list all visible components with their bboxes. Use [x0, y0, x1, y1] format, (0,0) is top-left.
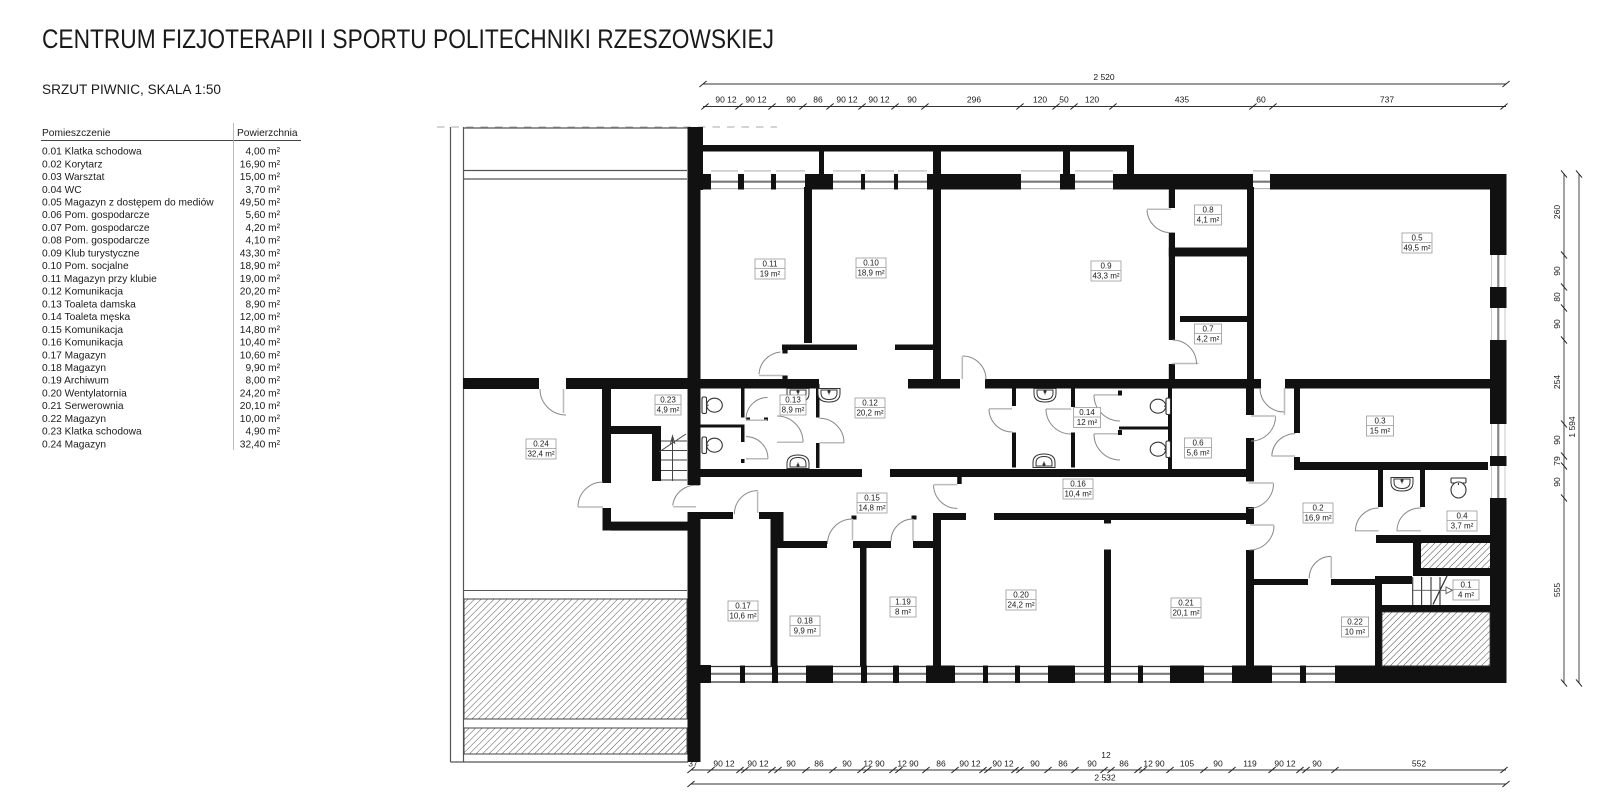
svg-text:0.2: 0.2 [1312, 504, 1324, 513]
svg-text:90: 90 [1552, 266, 1562, 276]
svg-text:12: 12 [1101, 750, 1111, 760]
svg-text:260: 260 [1552, 205, 1562, 219]
svg-text:9,90 m²: 9,90 m² [245, 363, 280, 374]
svg-text:435: 435 [1175, 95, 1189, 105]
svg-text:37: 37 [688, 759, 698, 769]
svg-text:90 12: 90 12 [868, 95, 890, 105]
svg-text:254: 254 [1552, 375, 1562, 389]
svg-text:0.12 Komunikacja: 0.12 Komunikacja [42, 287, 123, 298]
svg-text:2 532: 2 532 [1094, 773, 1116, 783]
svg-text:0.14: 0.14 [1079, 408, 1095, 417]
svg-text:32,40 m²: 32,40 m² [240, 439, 281, 450]
svg-text:15 m²: 15 m² [1370, 427, 1391, 436]
svg-text:90: 90 [842, 759, 852, 769]
svg-text:Powierzchnia: Powierzchnia [237, 128, 298, 139]
svg-text:90 12: 90 12 [747, 759, 769, 769]
svg-text:0.24 Magazyn: 0.24 Magazyn [42, 439, 106, 450]
svg-text:0.03 Warsztat: 0.03 Warsztat [42, 172, 105, 183]
svg-text:90 12: 90 12 [745, 95, 767, 105]
svg-text:0.19 Archiwum: 0.19 Archiwum [42, 376, 109, 387]
svg-text:0.4: 0.4 [1456, 512, 1468, 521]
svg-text:0.17 Magazyn: 0.17 Magazyn [42, 350, 106, 361]
svg-text:0.13 Toaleta damska: 0.13 Toaleta damska [42, 299, 136, 310]
svg-text:0.10: 0.10 [863, 259, 879, 268]
svg-text:10,60 m²: 10,60 m² [240, 350, 281, 361]
svg-text:90: 90 [1087, 759, 1097, 769]
svg-text:4,9 m²: 4,9 m² [657, 406, 680, 415]
svg-text:0.20: 0.20 [1013, 591, 1029, 600]
svg-text:0.3: 0.3 [1374, 417, 1386, 426]
svg-text:Pomieszczenie: Pomieszczenie [42, 128, 111, 139]
svg-text:4,10 m²: 4,10 m² [245, 236, 280, 247]
svg-text:4 m²: 4 m² [1458, 591, 1474, 600]
svg-text:60: 60 [1256, 95, 1266, 105]
svg-text:19 m²: 19 m² [760, 270, 781, 279]
svg-text:24,2 m²: 24,2 m² [1007, 601, 1034, 610]
svg-text:8,9 m²: 8,9 m² [782, 406, 805, 415]
svg-text:10,00 m²: 10,00 m² [240, 414, 281, 425]
svg-text:1 594: 1 594 [1567, 416, 1577, 438]
svg-text:3,70 m²: 3,70 m² [245, 185, 280, 196]
svg-text:90 12: 90 12 [1274, 759, 1296, 769]
svg-text:90 12: 90 12 [713, 759, 735, 769]
svg-text:0.22 Magazyn: 0.22 Magazyn [42, 414, 106, 425]
svg-text:90 12: 90 12 [715, 95, 737, 105]
svg-text:0.07 Pom. gospodarcze: 0.07 Pom. gospodarcze [42, 223, 150, 234]
svg-text:0.10 Pom. socjalne: 0.10 Pom. socjalne [42, 261, 129, 272]
svg-text:0.15 Komunikacja: 0.15 Komunikacja [42, 325, 123, 336]
svg-text:0.22: 0.22 [1347, 618, 1363, 627]
svg-text:12 90: 12 90 [863, 759, 885, 769]
svg-text:0.17: 0.17 [735, 602, 751, 611]
svg-text:79: 79 [1552, 456, 1562, 466]
svg-text:16,9 m²: 16,9 m² [1304, 514, 1331, 523]
svg-text:49,50 m²: 49,50 m² [240, 198, 281, 209]
svg-text:19,00 m²: 19,00 m² [240, 274, 281, 285]
svg-text:4,90 m²: 4,90 m² [245, 427, 280, 438]
svg-text:0.18 Magazyn: 0.18 Magazyn [42, 363, 106, 374]
svg-text:20,20 m²: 20,20 m² [240, 287, 281, 298]
svg-text:737: 737 [1380, 95, 1394, 105]
svg-text:552: 552 [1412, 759, 1426, 769]
svg-text:5,6 m²: 5,6 m² [1187, 449, 1210, 458]
svg-text:0.18: 0.18 [797, 617, 813, 626]
svg-text:12 90: 12 90 [1143, 759, 1165, 769]
svg-text:86: 86 [1058, 759, 1068, 769]
svg-text:SRZUT PIWNIC, SKALA 1:50: SRZUT PIWNIC, SKALA 1:50 [42, 82, 221, 97]
svg-text:0.15: 0.15 [864, 494, 880, 503]
svg-text:10,6 m²: 10,6 m² [729, 612, 756, 621]
svg-text:0.11: 0.11 [763, 260, 779, 269]
svg-text:0.11 Magazyn przy klubie: 0.11 Magazyn przy klubie [42, 274, 157, 285]
svg-text:90: 90 [1552, 435, 1562, 445]
svg-text:20,2 m²: 20,2 m² [856, 409, 883, 418]
svg-text:0.21 Serwerownia: 0.21 Serwerownia [42, 401, 124, 412]
svg-text:86: 86 [813, 95, 823, 105]
svg-text:24,20 m²: 24,20 m² [240, 389, 281, 400]
svg-text:0.1: 0.1 [1460, 581, 1472, 590]
svg-text:86: 86 [814, 759, 824, 769]
svg-text:5,60 m²: 5,60 m² [245, 210, 280, 221]
svg-text:14,8 m²: 14,8 m² [858, 504, 885, 513]
svg-text:10,40 m²: 10,40 m² [240, 338, 281, 349]
svg-text:2 520: 2 520 [1093, 72, 1115, 82]
svg-text:120: 120 [1085, 95, 1099, 105]
svg-text:0.5: 0.5 [1411, 234, 1423, 243]
svg-text:90: 90 [786, 95, 796, 105]
svg-text:0.6: 0.6 [1192, 439, 1204, 448]
svg-text:0.06 Pom. gospodarcze: 0.06 Pom. gospodarcze [42, 210, 150, 221]
svg-text:0.7: 0.7 [1202, 325, 1214, 334]
svg-text:120: 120 [1033, 95, 1047, 105]
svg-text:119: 119 [1243, 759, 1257, 769]
svg-text:32,4 m²: 32,4 m² [527, 450, 554, 459]
svg-text:4,00 m²: 4,00 m² [245, 147, 280, 158]
svg-text:8 m²: 8 m² [895, 608, 911, 617]
svg-text:90 12: 90 12 [992, 759, 1014, 769]
svg-text:90: 90 [786, 759, 796, 769]
svg-text:0.13: 0.13 [785, 396, 801, 405]
svg-text:0.20 Wentylatornia: 0.20 Wentylatornia [42, 389, 127, 400]
svg-text:80: 80 [1552, 292, 1562, 302]
svg-text:18,90 m²: 18,90 m² [240, 261, 281, 272]
svg-text:0.8: 0.8 [1202, 206, 1214, 215]
svg-text:49,5 m²: 49,5 m² [1403, 244, 1430, 253]
svg-text:90 12: 90 12 [959, 759, 981, 769]
svg-text:10,4 m²: 10,4 m² [1064, 490, 1091, 499]
svg-text:15,00 m²: 15,00 m² [240, 172, 281, 183]
svg-text:0.01 Klatka schodowa: 0.01 Klatka schodowa [42, 147, 142, 158]
svg-text:12 90: 12 90 [897, 759, 919, 769]
svg-text:0.08 Pom. gospodarcze: 0.08 Pom. gospodarcze [42, 236, 150, 247]
svg-text:50: 50 [1059, 95, 1069, 105]
svg-text:0.24: 0.24 [533, 440, 549, 449]
svg-text:12 m²: 12 m² [1077, 418, 1098, 427]
svg-text:43,30 m²: 43,30 m² [240, 248, 281, 259]
svg-text:20,10 m²: 20,10 m² [240, 401, 281, 412]
svg-text:90: 90 [1312, 759, 1322, 769]
svg-text:14,80 m²: 14,80 m² [240, 325, 281, 336]
svg-text:43,3 m²: 43,3 m² [1092, 272, 1119, 281]
svg-text:8,90 m²: 8,90 m² [245, 299, 280, 310]
svg-text:90: 90 [1213, 759, 1223, 769]
svg-text:86: 86 [1119, 759, 1129, 769]
svg-text:CENTRUM FIZJOTERAPII I SPORTU: CENTRUM FIZJOTERAPII I SPORTU POLITECHNI… [42, 24, 774, 54]
svg-text:86: 86 [936, 759, 946, 769]
svg-text:4,2 m²: 4,2 m² [1197, 335, 1220, 344]
svg-text:0.9: 0.9 [1100, 262, 1112, 271]
svg-text:0.14 Toaleta męska: 0.14 Toaleta męska [42, 312, 130, 323]
svg-text:90: 90 [1552, 319, 1562, 329]
svg-text:10 m²: 10 m² [1345, 628, 1366, 637]
svg-text:9,9 m²: 9,9 m² [794, 627, 817, 636]
svg-text:1.19: 1.19 [895, 598, 911, 607]
svg-text:20,1 m²: 20,1 m² [1172, 609, 1199, 618]
svg-text:4,1 m²: 4,1 m² [1197, 216, 1220, 225]
svg-text:0.12: 0.12 [862, 399, 878, 408]
svg-text:555: 555 [1552, 583, 1562, 597]
svg-text:12,00 m²: 12,00 m² [240, 312, 281, 323]
svg-text:0.05 Magazyn z dostępem do med: 0.05 Magazyn z dostępem do mediów [42, 198, 214, 209]
svg-text:0.16: 0.16 [1070, 480, 1086, 489]
svg-text:0.04 WC: 0.04 WC [42, 185, 82, 196]
svg-text:105: 105 [1180, 759, 1194, 769]
svg-text:3,7 m²: 3,7 m² [1451, 522, 1474, 531]
svg-text:4,20 m²: 4,20 m² [245, 223, 280, 234]
svg-text:8,00 m²: 8,00 m² [245, 376, 280, 387]
svg-text:296: 296 [967, 95, 981, 105]
svg-text:18,9 m²: 18,9 m² [857, 269, 884, 278]
svg-text:16,90 m²: 16,90 m² [240, 159, 281, 170]
svg-text:0.02 Korytarz: 0.02 Korytarz [42, 159, 103, 170]
svg-text:0.23 Klatka schodowa: 0.23 Klatka schodowa [42, 427, 142, 438]
svg-text:90: 90 [1552, 477, 1562, 487]
svg-text:90 12: 90 12 [836, 95, 858, 105]
svg-text:90: 90 [907, 95, 917, 105]
svg-text:0.23: 0.23 [660, 396, 676, 405]
svg-text:90: 90 [1030, 759, 1040, 769]
svg-text:0.09 Klub turystyczne: 0.09 Klub turystyczne [42, 248, 140, 259]
svg-text:0.16 Komunikacja: 0.16 Komunikacja [42, 338, 123, 349]
svg-text:0.21: 0.21 [1178, 599, 1194, 608]
